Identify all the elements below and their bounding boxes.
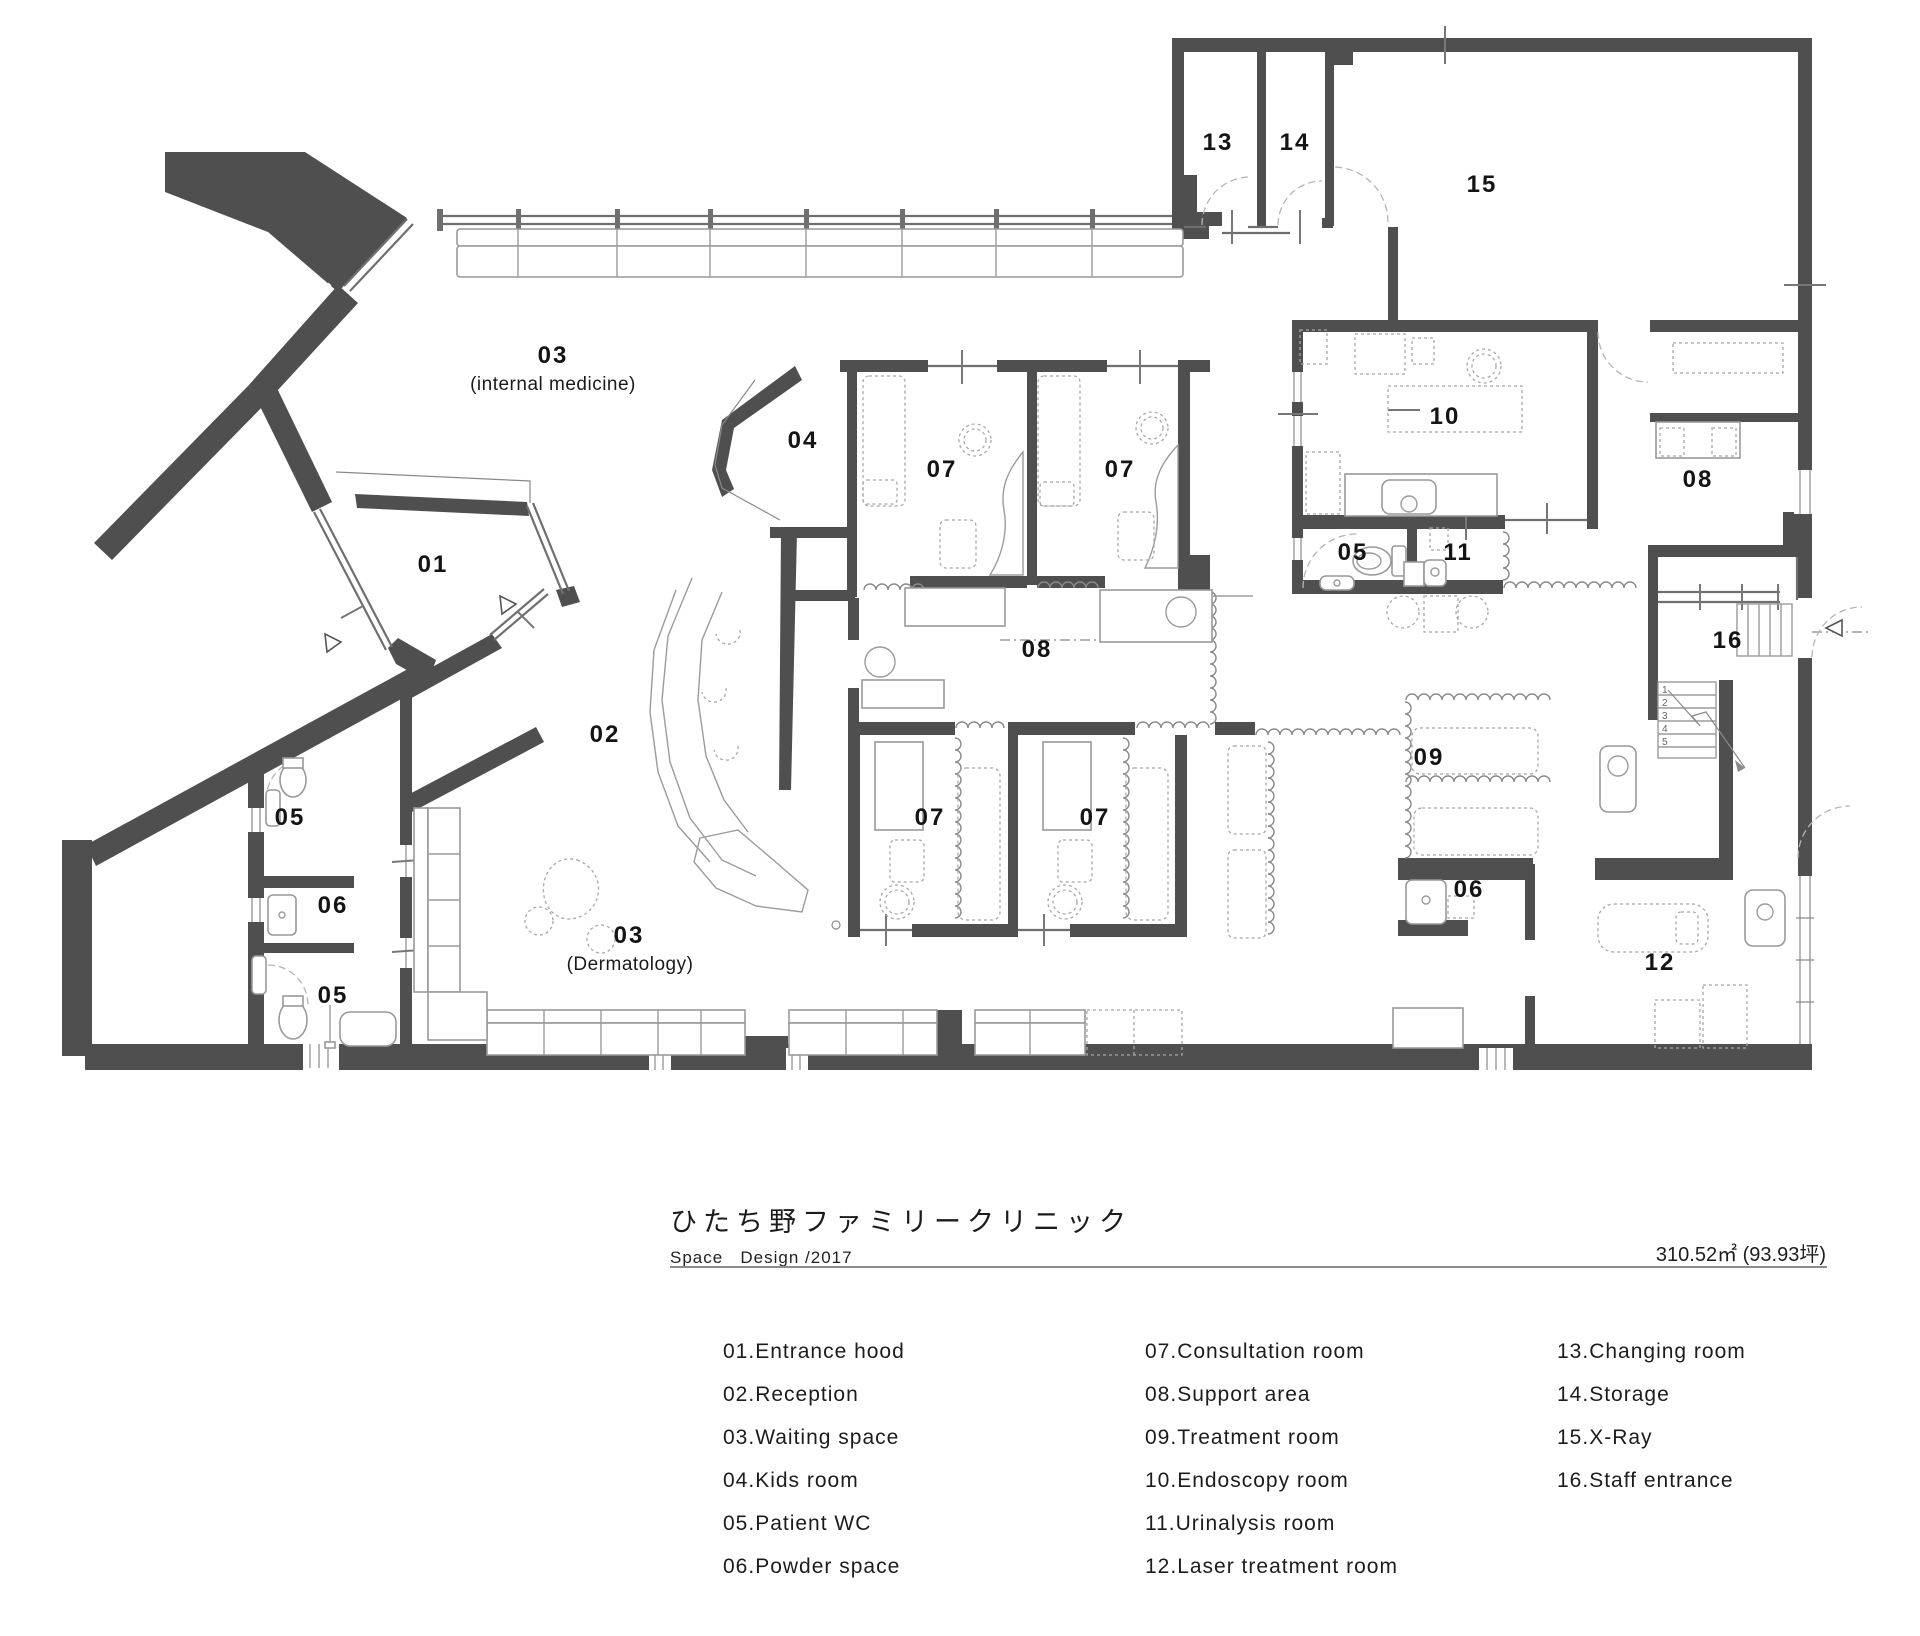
room-sublabel: (internal medicine): [470, 374, 636, 395]
stair-step-number: 5: [1662, 737, 1668, 748]
floor-area: 310.52㎡ (93.93坪): [1420, 1238, 1826, 1267]
legend-column-3: 13.Changing room14.Storage15.X-Ray16.Sta…: [1557, 1330, 1746, 1502]
endoscopy-room: [1300, 330, 1522, 516]
room-label-03: 03: [538, 342, 569, 369]
staff-entry-arrow: [1826, 620, 1842, 636]
room-label-02: 02: [590, 721, 621, 748]
legend-item: 11.Urinalysis room: [1145, 1502, 1398, 1545]
legend-item: 02.Reception: [723, 1373, 905, 1416]
legend-item: 15.X-Ray: [1557, 1416, 1746, 1459]
entry-arrow-2: [325, 634, 341, 652]
room-label-05: 05: [318, 982, 349, 1009]
entry-arrow-1: [500, 596, 516, 614]
room-label-05: 05: [1338, 539, 1369, 566]
legend-item: 07.Consultation room: [1145, 1330, 1398, 1373]
legend-item: 13.Changing room: [1557, 1330, 1746, 1373]
legend-item: 05.Patient WC: [723, 1502, 905, 1545]
legend-item: 04.Kids room: [723, 1459, 905, 1502]
title-block: ひたち野ファミリークリニック Space Design /2017: [670, 1200, 1132, 1268]
legend-item: 12.Laser treatment room: [1145, 1545, 1398, 1588]
legend-item: 03.Waiting space: [723, 1416, 905, 1459]
consult-D: [1043, 742, 1168, 920]
legend-column-1: 01.Entrance hood02.Reception03.Waiting s…: [723, 1330, 905, 1588]
stairs: 12345: [1600, 604, 1792, 812]
room-label-03: 03: [614, 922, 645, 949]
room-sublabel: (Dermatology): [567, 954, 694, 975]
stair-step-number: 1: [1662, 685, 1668, 696]
room-label-04: 04: [788, 427, 819, 454]
room-label-13: 13: [1203, 129, 1234, 156]
legend-item: 16.Staff entrance: [1557, 1459, 1746, 1502]
room-label-08: 08: [1683, 466, 1714, 493]
legend-item: 01.Entrance hood: [723, 1330, 905, 1373]
room-label-07: 07: [915, 804, 946, 831]
design-credit: Space Design /2017: [670, 1248, 1132, 1268]
stair-step-number: 4: [1662, 724, 1668, 735]
clinic-title: ひたち野ファミリークリニック: [670, 1200, 1132, 1239]
legend-item: 14.Storage: [1557, 1373, 1746, 1416]
room-label-07: 07: [927, 456, 958, 483]
legend-item: 10.Endoscopy room: [1145, 1459, 1398, 1502]
room-label-11: 11: [1443, 539, 1472, 566]
floor-plan-page: { "document": { "title": "ひたち野ファミリークリニック…: [0, 0, 1920, 1636]
room-label-07: 07: [1105, 456, 1136, 483]
legend-column-2: 07.Consultation room08.Support area09.Tr…: [1145, 1330, 1398, 1588]
legend-item: 08.Support area: [1145, 1373, 1398, 1416]
room-label-14: 14: [1280, 129, 1311, 156]
corner-sofa: [414, 808, 487, 1040]
room-label-16: 16: [1713, 627, 1744, 654]
room-label-05: 05: [275, 804, 306, 831]
laser-room: [1598, 890, 1785, 1048]
room-label-09: 09: [1414, 744, 1445, 771]
stair-step-number: 3: [1662, 711, 1668, 722]
waiting-bench-top: [457, 229, 1183, 277]
room-label-01: 01: [418, 551, 449, 578]
support-right: [1656, 343, 1783, 458]
legend-item: 06.Powder space: [723, 1545, 905, 1588]
room-label-06: 06: [1454, 876, 1485, 903]
legend-item: 09.Treatment room: [1145, 1416, 1398, 1459]
room-label-10: 10: [1430, 403, 1461, 430]
room-label-15: 15: [1467, 171, 1498, 198]
room-label-12: 12: [1645, 949, 1676, 976]
play-cushion: [543, 859, 598, 919]
room-label-07: 07: [1080, 804, 1111, 831]
room-label-08: 08: [1022, 636, 1053, 663]
stair-step-number: 2: [1662, 698, 1668, 709]
room-label-06: 06: [318, 892, 349, 919]
